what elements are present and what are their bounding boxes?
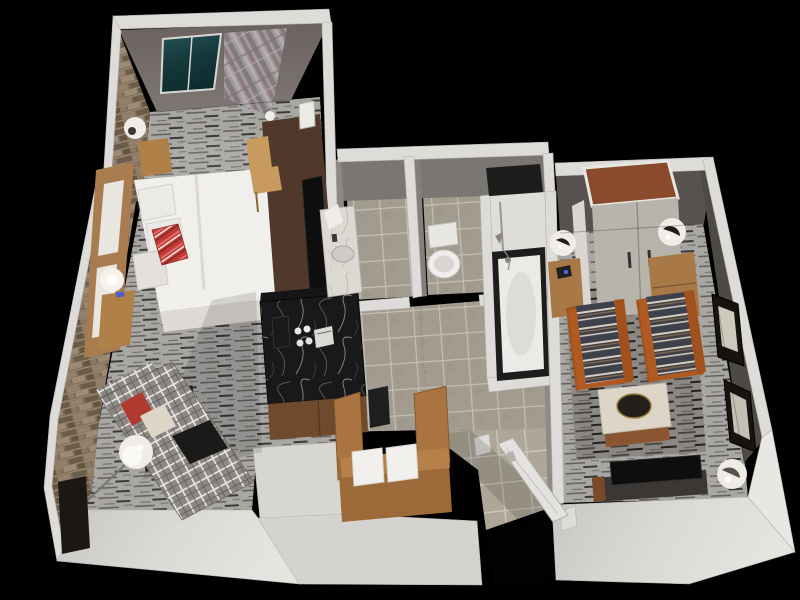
coffee-bar-marble-counter bbox=[260, 293, 366, 404]
desk-chair-back bbox=[246, 136, 272, 172]
desk-chair-seat bbox=[250, 166, 282, 194]
scene bbox=[0, 0, 800, 600]
door-opening-void bbox=[487, 520, 554, 585]
nightstand-north bbox=[138, 138, 172, 177]
trash-bin bbox=[368, 386, 390, 428]
floorplan-svg bbox=[0, 0, 800, 600]
clock-blue-glow bbox=[564, 270, 568, 274]
framed-art-brick-small bbox=[58, 476, 90, 554]
bench-pillow-1 bbox=[352, 448, 384, 486]
globe-lamp-north bbox=[124, 117, 146, 139]
bathtub-basin-shading bbox=[506, 272, 536, 356]
coffee-cup-2 bbox=[304, 326, 311, 333]
coffee-maker bbox=[272, 316, 290, 348]
ottoman-round-tray bbox=[617, 394, 651, 418]
floor-lamp-living-highlight bbox=[725, 476, 731, 482]
nightstand-south bbox=[98, 290, 135, 350]
bench-pillow-2 bbox=[386, 444, 418, 482]
floor-lamp-lounge-highlight bbox=[137, 445, 143, 451]
globe-lamp-north-shade-opening bbox=[128, 127, 136, 135]
globe-lamp-west-highlight bbox=[558, 245, 562, 249]
media-console-wood-end bbox=[592, 476, 606, 502]
toiletry-bottle bbox=[332, 234, 338, 242]
toilet-seat bbox=[434, 256, 454, 273]
coffee-cup-4 bbox=[306, 338, 313, 345]
bench-alcove-platform bbox=[253, 442, 346, 519]
globe-lamp-south-glow bbox=[107, 275, 117, 285]
tub-deck-dark bbox=[486, 164, 543, 196]
coffee-cup-3 bbox=[297, 340, 304, 347]
vanity-sink bbox=[332, 246, 354, 262]
desk-lamp bbox=[265, 111, 275, 121]
closet-top-face bbox=[584, 161, 678, 206]
shower-north-wall-cap bbox=[543, 153, 555, 193]
bed-pillow-1 bbox=[138, 184, 176, 221]
wall-sconce bbox=[299, 101, 315, 129]
toilet-tank bbox=[428, 222, 458, 248]
coffee-cup-1 bbox=[295, 328, 302, 335]
globe-lamp-east-highlight bbox=[666, 235, 670, 239]
